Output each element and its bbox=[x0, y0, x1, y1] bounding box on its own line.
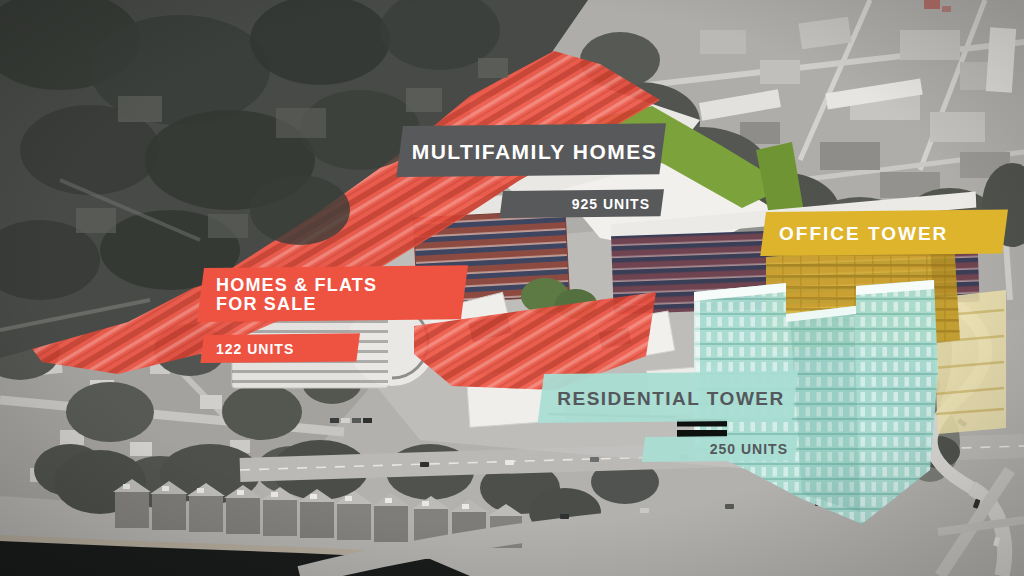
label-residential-tower: RESIDENTIAL TOWER bbox=[544, 374, 798, 423]
label-multifamily-units: 925 UNITS bbox=[503, 191, 664, 218]
label-residential-units: 250 UNITS bbox=[645, 437, 798, 462]
label-multifamily-homes: MULTIFAMILY HOMES bbox=[403, 126, 666, 177]
label-homes-flats: HOMES & FLATS FOR SALE bbox=[204, 268, 468, 322]
aerial-development-overview: MULTIFAMILY HOMES 925 UNITS OFFICE TOWER… bbox=[0, 0, 1024, 576]
label-multifamily-units-text: 925 UNITS bbox=[503, 191, 664, 218]
aerial-photo-background bbox=[0, 0, 1024, 576]
label-homes-flats-line1: HOMES & FLATS bbox=[204, 268, 468, 295]
label-homes-flats-units-text: 122 UNITS bbox=[204, 335, 360, 363]
label-office-tower: OFFICE TOWER bbox=[766, 212, 1008, 256]
label-residential-units-text: 250 UNITS bbox=[645, 437, 798, 462]
label-multifamily-title: MULTIFAMILY HOMES bbox=[403, 126, 666, 177]
label-residential-title: RESIDENTIAL TOWER bbox=[544, 374, 798, 423]
label-homes-flats-units: 122 UNITS bbox=[204, 335, 360, 363]
label-homes-flats-line2: FOR SALE bbox=[204, 295, 468, 314]
label-office-title: OFFICE TOWER bbox=[766, 212, 1008, 256]
